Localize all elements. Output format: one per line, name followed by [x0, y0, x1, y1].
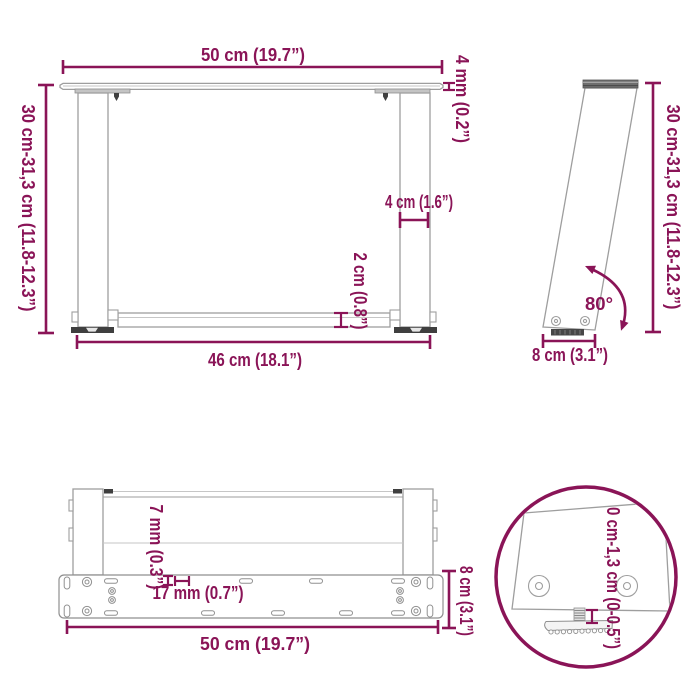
slot-horizontal: [310, 579, 323, 584]
dim-plate-thickness: 4 mm (0.2”): [443, 55, 472, 143]
side-foot: [551, 329, 584, 336]
dim-hole-spacing-label: 17 mm (0.7”): [153, 583, 244, 603]
slot-horizontal: [392, 611, 405, 616]
bottom-tab-l2: [69, 528, 73, 541]
bottom-leg-left: [73, 489, 103, 575]
dim-hole-diameter-label: 7 mm (0.3”): [146, 505, 166, 590]
bottom-leg-right: [403, 489, 433, 575]
screw-hole: [411, 577, 420, 586]
dim-outer-span: 46 cm (18.1”): [77, 335, 430, 370]
dim-foot-depth-label: 8 cm (3.1”): [532, 345, 608, 365]
slot-horizontal: [202, 611, 215, 616]
dim-plate-width: 50 cm (19.7”): [67, 620, 438, 654]
dim-foot-depth: 8 cm (3.1”): [532, 334, 608, 365]
bottom-tab-l1: [69, 500, 73, 511]
screw-hole: [82, 577, 91, 586]
dim-hole-diameter: 7 mm (0.3”): [146, 505, 173, 590]
dim-side-height: 30 cm-31,3 cm (11.8-12.3”): [645, 83, 683, 332]
bottom-screw-mark-left: [104, 489, 113, 494]
dim-outer-span-label: 46 cm (18.1”): [208, 350, 302, 370]
side-top-plate: [583, 80, 638, 88]
tab-right: [430, 312, 436, 322]
slot-horizontal: [105, 611, 118, 616]
slot-vertical: [427, 577, 433, 589]
slot-horizontal: [272, 611, 285, 616]
front-leg-left: [78, 93, 108, 327]
dim-top-width-label: 50 cm (19.7”): [201, 45, 305, 65]
dim-angle-label: 80°: [585, 294, 613, 314]
slot-vertical: [64, 605, 70, 617]
dim-leg-width-label: 4 cm (1.6”): [385, 192, 453, 212]
crossbar-joint-left: [108, 310, 118, 320]
dim-plate-thickness-label: 4 mm (0.2”): [452, 55, 472, 143]
detail-screw-hole-inner: [624, 583, 631, 590]
dimension-diagram-page: 50 cm (19.7”) 4 mm (0.2”) 30 cm-31,3 cm …: [0, 0, 700, 700]
screw-right: [383, 93, 388, 101]
dim-plate-depth: 8 cm (3.1”): [442, 566, 476, 636]
dim-front-height-label: 30 cm-31,3 cm (11.8-12.3”): [18, 105, 38, 312]
bottom-tab-r1: [433, 500, 437, 511]
foot-right: [394, 327, 437, 333]
front-view: 50 cm (19.7”) 4 mm (0.2”) 30 cm-31,3 cm …: [18, 45, 472, 370]
screw-hole: [82, 606, 91, 615]
detail-view: 0 cm-1,3 cm (0-0.5”): [496, 487, 676, 667]
dim-crossbar-height-label: 2 cm (0.8”): [350, 253, 370, 330]
slot-horizontal: [392, 579, 405, 584]
foot-left: [71, 327, 114, 333]
bottom-screw-mark-right: [393, 489, 402, 494]
dim-plate-width-label: 50 cm (19.7”): [200, 634, 310, 654]
slot-horizontal: [105, 579, 118, 584]
crossbar-joint-right: [390, 310, 400, 320]
dim-front-height: 30 cm-31,3 cm (11.8-12.3”): [18, 85, 54, 333]
detail-screw-hole-inner: [536, 583, 543, 590]
crossbar: [118, 313, 390, 327]
screw-left: [114, 93, 119, 101]
dim-adjustable-range-label: 0 cm-1,3 cm (0-0.5”): [603, 507, 623, 649]
dim-side-height-label: 30 cm-31,3 cm (11.8-12.3”): [663, 105, 683, 310]
slot-vertical: [64, 577, 70, 589]
side-view: 80° 8 cm (3.1”) 30 cm-31,3 cm (11.8-12.3…: [532, 80, 683, 365]
dim-top-width: 50 cm (19.7”): [63, 45, 442, 74]
dimension-diagram: 50 cm (19.7”) 4 mm (0.2”) 30 cm-31,3 cm …: [0, 0, 700, 700]
slot-vertical: [427, 605, 433, 617]
bottom-view: 7 mm (0.3”) 17 mm (0.7”) 8 cm (3.1”) 50 …: [59, 489, 476, 654]
tab-left: [72, 312, 78, 322]
bottom-tab-r2: [433, 528, 437, 541]
screw-hole: [411, 606, 420, 615]
dim-plate-depth-label: 8 cm (3.1”): [456, 566, 476, 636]
slot-horizontal: [340, 611, 353, 616]
